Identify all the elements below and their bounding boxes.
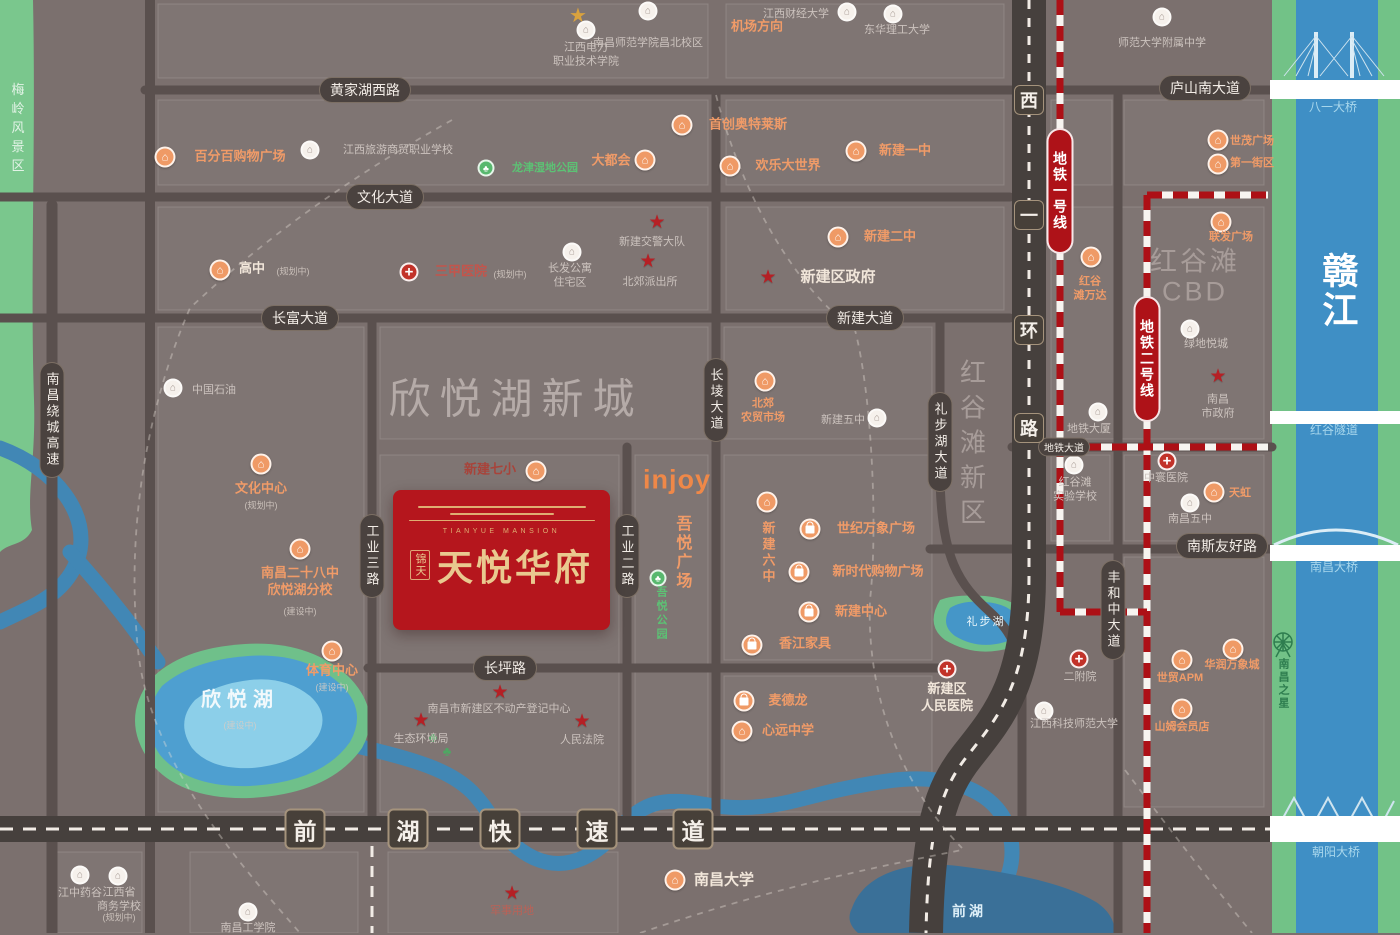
- poi-label: 地铁大厦: [1067, 422, 1111, 436]
- shopping-bag-icon: [742, 635, 763, 656]
- poi-label: 吾悦公园: [654, 586, 668, 642]
- poi-label: 第一街区: [1230, 156, 1274, 170]
- building-marker-icon: ⌂: [210, 260, 231, 281]
- building-marker-icon: ⌂: [1088, 251, 1095, 263]
- road-label: 新建大道: [826, 305, 904, 331]
- area-label: 红谷滩新区: [954, 359, 991, 534]
- area-label: 红谷滩: [1150, 240, 1240, 279]
- poi-label: 江西科技师范大学: [1030, 717, 1118, 731]
- poi-label: 生态环境局: [394, 732, 449, 746]
- poi-label: 大都会: [591, 153, 630, 170]
- water-label: 欣悦湖: [201, 687, 279, 713]
- poi-label: 龙津湿地公园: [512, 161, 578, 175]
- poi-label: 南昌大学: [694, 870, 754, 890]
- building-marker-icon: ⌂: [1204, 482, 1225, 503]
- building-marker-icon: ⌂: [764, 496, 771, 508]
- school-marker-icon: ⌂: [77, 870, 83, 881]
- building-marker-icon: ⌂: [853, 145, 860, 157]
- school-marker-icon: ⌂: [639, 2, 658, 21]
- school-marker-icon: ⌂: [890, 9, 896, 20]
- building-marker-icon: ⌂: [155, 147, 176, 168]
- building-marker-icon: ⌂: [1215, 134, 1222, 146]
- road-label: 南斯友好路: [1176, 533, 1268, 559]
- poi-label: 联发广场: [1209, 230, 1253, 244]
- building-marker-icon: ⌂: [1179, 703, 1186, 715]
- bridge-label: 八一大桥: [1309, 100, 1357, 116]
- building-marker-icon: ⌂: [1223, 639, 1244, 660]
- school-marker-icon: ⌂: [838, 3, 857, 22]
- hospital-cross-icon: +: [1158, 452, 1177, 471]
- poi-label: 新时代购物广场: [832, 564, 923, 581]
- poi-label: 长发公寓住宅区: [548, 262, 592, 291]
- poi-label: 南昌市新建区不动产登记中心: [428, 702, 571, 716]
- shopping-bag-icon: [734, 691, 755, 712]
- star-icon: ★: [759, 266, 776, 289]
- ring-road-char: 西: [1014, 85, 1044, 115]
- poi-label: 山姆会员店: [1155, 720, 1210, 734]
- star-icon: ★: [503, 882, 520, 905]
- star-icon: ★: [636, 249, 660, 273]
- road-label-vertical: 长堎大道: [704, 358, 729, 442]
- poi-label: 新建区人民医院: [921, 681, 973, 715]
- shopping-bag-icon: [800, 519, 821, 540]
- school-marker-icon: ⌂: [307, 145, 313, 156]
- school-marker-icon: ⌂: [1089, 403, 1108, 422]
- school-marker-icon: ⌂: [583, 25, 589, 36]
- building-marker-icon: ⌂: [727, 160, 734, 172]
- road-label-vertical: 丰和中大道: [1101, 560, 1126, 660]
- school-marker-icon: ⌂: [1181, 494, 1200, 513]
- school-marker-icon: ⌂: [645, 6, 651, 17]
- school-marker-icon: ⌂: [1071, 460, 1077, 471]
- building-marker-icon: ⌂: [757, 492, 778, 513]
- poi-sublabel: (建设中): [284, 605, 317, 618]
- poi-label: 人民法院: [560, 733, 604, 747]
- hospital-cross-icon: +: [1075, 652, 1084, 667]
- star-icon: ★: [573, 710, 590, 733]
- building-marker-icon: ⌂: [217, 264, 224, 276]
- star-icon: ★: [570, 709, 594, 733]
- poi-label: 高中: [239, 261, 265, 278]
- water-sublabel: (建设中): [224, 719, 257, 732]
- star-icon: ★: [639, 250, 656, 273]
- park-pin-icon: ♣: [650, 570, 667, 587]
- project-name: 天悦华府: [437, 539, 593, 591]
- bridge-label: 南昌大桥: [1310, 560, 1358, 576]
- building-marker-icon: ⌂: [1172, 650, 1193, 671]
- building-marker-icon: ⌂: [1081, 247, 1102, 268]
- building-marker-icon: ⌂: [755, 371, 776, 392]
- poi-sublabel: (规划中): [103, 911, 136, 924]
- road-label: 长坪路: [473, 655, 537, 681]
- star-icon: ★: [500, 881, 524, 905]
- poi-label: 绿地悦城: [1184, 337, 1228, 351]
- hospital-cross-icon: +: [1163, 454, 1172, 469]
- poi-label: 百分百购物广场: [194, 149, 285, 166]
- park-pin-icon: ♣: [655, 573, 661, 583]
- poi-label: 北郊农贸市场: [741, 397, 785, 426]
- school-marker-icon: ⌂: [109, 867, 128, 886]
- building-marker-icon: ⌂: [846, 141, 867, 162]
- shopping-bag-icon: [799, 602, 820, 623]
- building-marker-icon: ⌂: [762, 375, 769, 387]
- hospital-cross-icon: +: [938, 660, 957, 679]
- road-label: 长富大道: [261, 305, 339, 331]
- park-pin-icon: ♣: [483, 163, 489, 173]
- building-marker-icon: ⌂: [322, 641, 343, 662]
- poi-label: 世贸APM: [1157, 671, 1203, 685]
- school-marker-icon: ⌂: [1065, 456, 1084, 475]
- bridge-label: 红谷隧道: [1310, 423, 1358, 439]
- poi-label: 世纪万象广场: [837, 521, 915, 538]
- hospital-cross-icon: +: [943, 662, 952, 677]
- building-marker-icon: ⌂: [1218, 216, 1225, 228]
- building-marker-icon: ⌂: [258, 458, 265, 470]
- water-label: 前湖: [952, 902, 986, 920]
- ring-road-char: 路: [1014, 413, 1044, 443]
- school-marker-icon: ⌂: [170, 383, 176, 394]
- school-marker-icon: ⌂: [844, 7, 850, 18]
- school-marker-icon: ⌂: [1187, 498, 1193, 509]
- building-marker-icon: ⌂: [1230, 643, 1237, 655]
- building-marker-icon: ⌂: [1179, 654, 1186, 666]
- expressway-char: 前: [285, 809, 326, 850]
- school-marker-icon: ⌂: [1159, 12, 1165, 23]
- water-label: 赣江: [1314, 252, 1361, 330]
- building-marker-icon: ⌂: [679, 119, 686, 131]
- project-brand-seal: 锦天: [410, 550, 430, 580]
- school-marker-icon: ⌂: [71, 866, 90, 885]
- poi-label: 东华理工大学: [864, 23, 930, 37]
- building-marker-icon: ⌂: [1208, 130, 1229, 151]
- school-marker-icon: ⌂: [874, 413, 880, 424]
- poi-label: injoy: [643, 462, 711, 497]
- expressway-char: 快: [480, 809, 521, 850]
- park-pin-icon: ♣: [478, 160, 495, 177]
- poi-sublabel: (规划中): [245, 499, 278, 512]
- poi-label: 军事用地: [490, 904, 534, 918]
- poi-label: 吾悦广场: [671, 515, 692, 591]
- ring-road-char: 环: [1014, 315, 1044, 345]
- poi-label: 欢乐大世界: [755, 158, 820, 175]
- expressway-char: 湖: [388, 809, 429, 850]
- school-marker-icon: ⌂: [115, 871, 121, 882]
- building-marker-icon: ⌂: [290, 539, 311, 560]
- location-map: 黄家湖西路庐山南大道文化大道长富大道新建大道南斯友好路长坪路地铁大道南昌绕城高速…: [0, 0, 1400, 933]
- water-label: 礼步湖: [967, 615, 1006, 629]
- building-marker-icon: ⌂: [720, 156, 741, 177]
- school-marker-icon: ⌂: [1095, 407, 1101, 418]
- star-icon: ★: [488, 680, 512, 704]
- expressway-char: 道: [673, 809, 714, 850]
- building-marker-icon: ⌂: [251, 454, 272, 475]
- building-marker-icon: ⌂: [1211, 486, 1218, 498]
- metro-line-badge: 地铁一号线: [1047, 128, 1074, 254]
- poi-label: 麦德龙: [768, 693, 807, 710]
- area-label: 梅岭风景区: [8, 83, 27, 178]
- star-icon: ★: [1209, 365, 1226, 388]
- building-marker-icon: ⌂: [1208, 154, 1229, 175]
- school-marker-icon: ⌂: [868, 409, 887, 428]
- poi-label: 二附院: [1064, 670, 1097, 684]
- poi-label: 南昌二十八中欣悦湖分校: [261, 565, 339, 599]
- hospital-cross-icon: +: [400, 263, 419, 282]
- poi-label: 南昌市政府: [1202, 393, 1235, 422]
- poi-label: 新建中心: [835, 604, 887, 621]
- building-marker-icon: ⌂: [635, 150, 656, 171]
- poi-label: 新建二中: [864, 229, 916, 246]
- poi-label: 体育中心: [306, 663, 358, 680]
- building-marker-icon: ⌂: [732, 721, 753, 742]
- poi-label: 红谷滩实验学校: [1053, 476, 1097, 505]
- building-marker-icon: ⌂: [665, 870, 686, 891]
- star-icon: ★: [1206, 364, 1230, 388]
- road-label: 黄家湖西路: [319, 77, 411, 103]
- star-icon: ★: [645, 210, 669, 234]
- road-label-vertical: 工业三路: [360, 514, 385, 598]
- school-marker-icon: ⌂: [569, 247, 575, 258]
- star-icon: ★: [756, 265, 780, 289]
- poi-label: 江西电力职业技术学院: [553, 41, 619, 70]
- project-deco-lines: [417, 506, 587, 521]
- map-labels-layer: 黄家湖西路庐山南大道文化大道长富大道新建大道南斯友好路长坪路地铁大道南昌绕城高速…: [0, 0, 1400, 933]
- poi-label: 心远中学: [762, 723, 814, 740]
- road-label: 文化大道: [346, 184, 424, 210]
- building-marker-icon: ⌂: [835, 231, 842, 243]
- poi-label: 新建区政府: [800, 267, 875, 287]
- school-marker-icon: ⌂: [884, 5, 903, 24]
- school-marker-icon: ⌂: [239, 903, 258, 922]
- building-marker-icon: ⌂: [642, 154, 649, 166]
- school-marker-icon: ⌂: [245, 907, 251, 918]
- school-marker-icon: ⌂: [1153, 8, 1172, 27]
- hospital-cross-icon: +: [405, 265, 414, 280]
- poi-label: 天虹: [1229, 486, 1251, 500]
- school-marker-icon: ⌂: [164, 379, 183, 398]
- metro-line-badge: 地铁二号线: [1134, 296, 1161, 422]
- star-icon: ★: [648, 211, 665, 234]
- building-marker-icon: ⌂: [533, 465, 540, 477]
- expressway-char: 速: [577, 809, 618, 850]
- poi-sublabel: (规划中): [277, 265, 310, 278]
- poi-label: 中寰医院: [1144, 471, 1188, 485]
- poi-label: 新建六中: [759, 521, 776, 585]
- poi-label: 华润万象城: [1205, 658, 1260, 672]
- poi-label: 北郊派出所: [623, 275, 678, 289]
- hospital-cross-icon: +: [1070, 650, 1089, 669]
- building-marker-icon: ⌂: [297, 543, 304, 555]
- poi-sublabel: (规划中): [494, 268, 527, 281]
- building-marker-icon: ⌂: [1215, 158, 1222, 170]
- poi-label: 新建交警大队: [619, 235, 685, 249]
- poi-label: 江中药谷: [58, 886, 102, 900]
- school-marker-icon: ⌂: [563, 243, 582, 262]
- school-marker-icon: ⌂: [1187, 324, 1193, 335]
- poi-label: 三甲医院: [435, 264, 487, 281]
- building-marker-icon: ⌂: [672, 115, 693, 136]
- poi-label: 江西旅游商贸职业学校: [343, 143, 453, 157]
- star-icon: ★: [491, 681, 508, 704]
- shopping-bag-icon: [789, 562, 810, 583]
- school-marker-icon: ⌂: [1181, 320, 1200, 339]
- poi-label: 首创奥特莱斯: [709, 117, 787, 134]
- school-marker-icon: ⌂: [1041, 706, 1047, 717]
- poi-label: 红谷滩万达: [1074, 275, 1107, 304]
- poi-label: 中国石油: [192, 383, 236, 397]
- area-label: 欣悦湖新城: [388, 366, 643, 427]
- poi-label: 新建七小: [464, 462, 516, 479]
- building-marker-icon: ⌂: [162, 151, 169, 163]
- area-label: 南昌之星: [1275, 658, 1291, 710]
- building-marker-icon: ⌂: [329, 645, 336, 657]
- road-label: 庐山南大道: [1159, 75, 1251, 101]
- project-card: TIANYUE MANSION 锦天 天悦华府: [393, 490, 610, 630]
- road-label-vertical: 工业二路: [615, 514, 640, 598]
- ring-road-char: 一: [1014, 200, 1044, 230]
- road-label-vertical: 礼步湖大道: [928, 392, 953, 492]
- road-label: 地铁大道: [1038, 438, 1090, 457]
- project-name-en: TIANYUE MANSION: [443, 528, 560, 535]
- building-marker-icon: ⌂: [739, 725, 746, 737]
- bridge-label: 朝阳大桥: [1312, 845, 1360, 861]
- building-marker-icon: ⌂: [526, 461, 547, 482]
- poi-label: 新建五中: [821, 413, 865, 427]
- poi-label: 文化中心: [235, 481, 287, 498]
- poi-label: 南昌五中: [1168, 512, 1212, 526]
- poi-label: 师范大学附属中学: [1118, 36, 1206, 50]
- school-marker-icon: ⌂: [301, 141, 320, 160]
- building-marker-icon: ⌂: [672, 874, 679, 886]
- road-label-vertical: 南昌绕城高速: [40, 362, 65, 478]
- poi-label: 江西财经大学: [763, 7, 829, 21]
- poi-label: 香江家具: [779, 636, 831, 653]
- building-marker-icon: ⌂: [1172, 699, 1193, 720]
- area-label: CBD: [1162, 277, 1228, 308]
- poi-label: 世茂广场: [1230, 134, 1274, 148]
- poi-sublabel: (建设中): [316, 681, 349, 694]
- building-marker-icon: ⌂: [828, 227, 849, 248]
- poi-label: 新建一中: [879, 143, 931, 160]
